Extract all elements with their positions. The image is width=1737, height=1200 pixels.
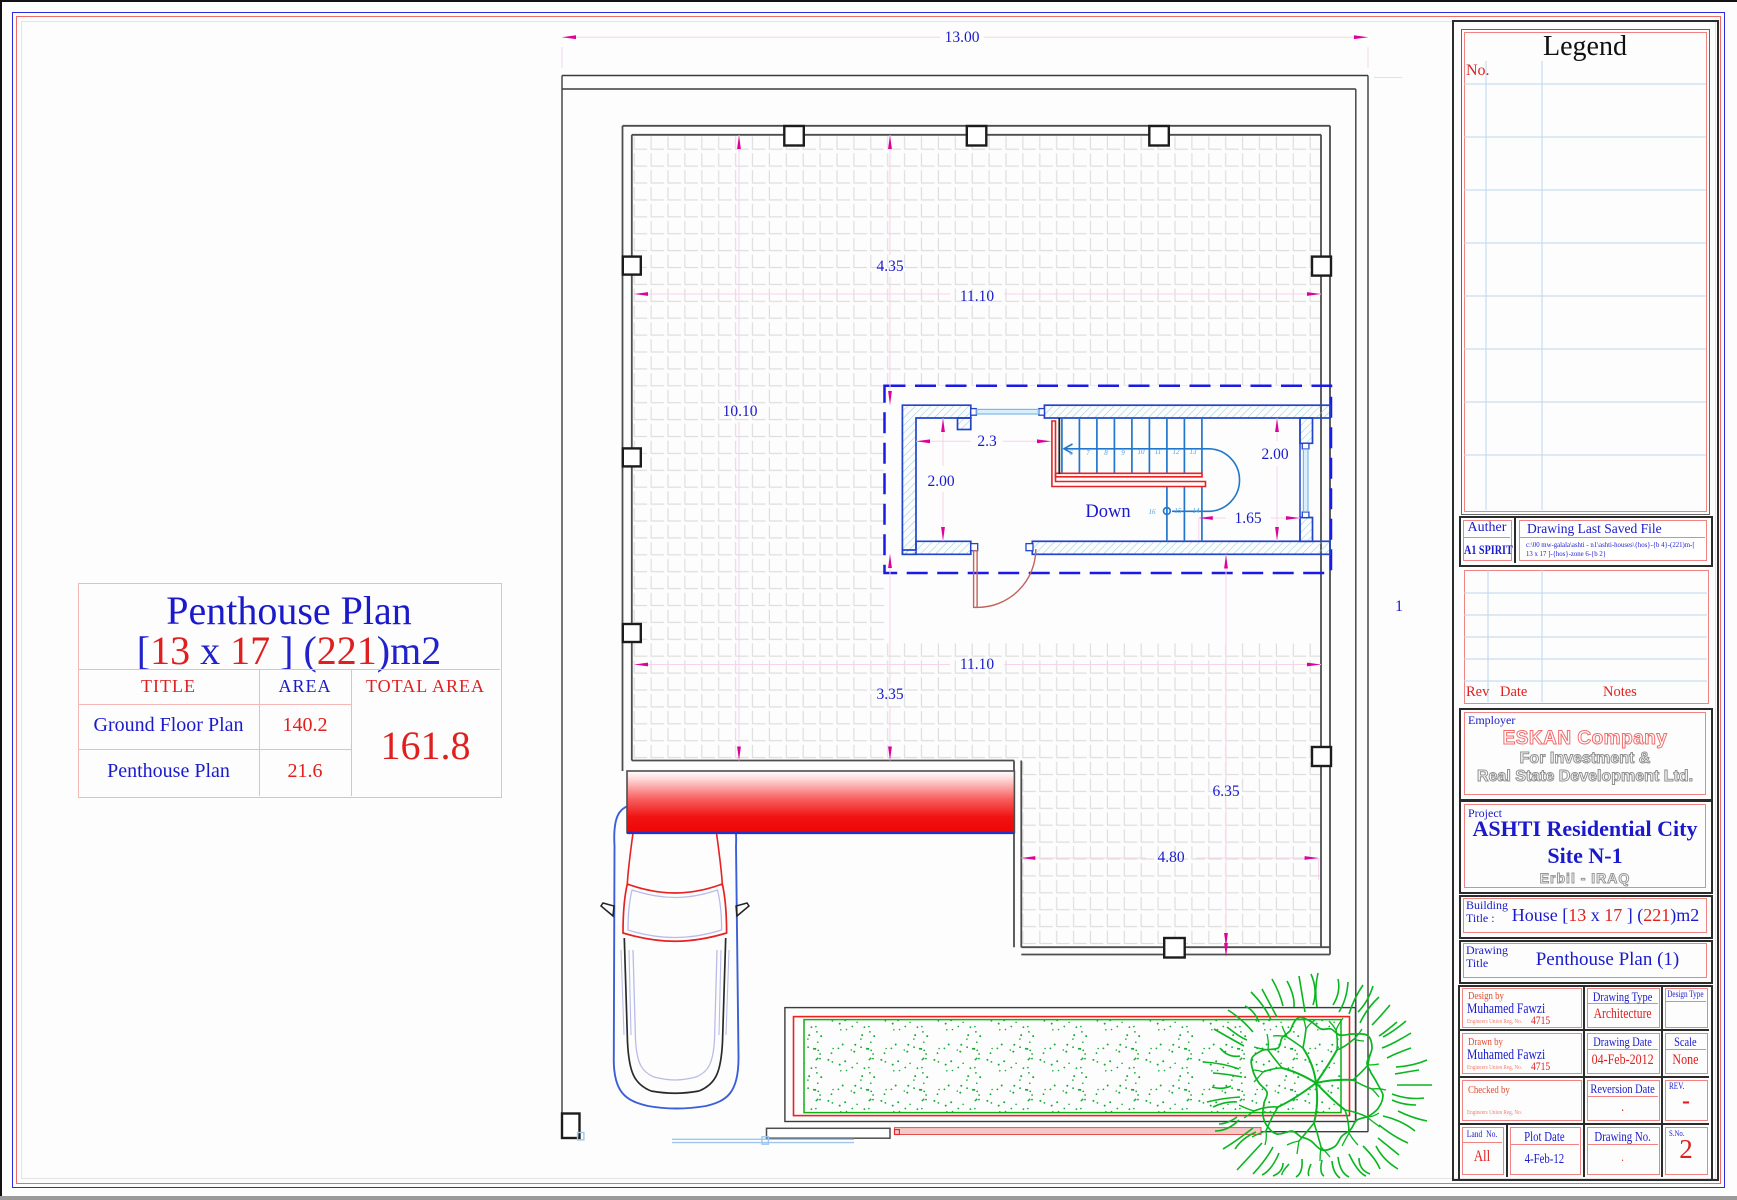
svg-text:4.80: 4.80 <box>1157 849 1184 866</box>
svg-text:8: 8 <box>1104 449 1108 457</box>
svg-text:2.00: 2.00 <box>927 473 954 490</box>
svg-text:2.00: 2.00 <box>1261 446 1288 463</box>
svg-text:11.10: 11.10 <box>960 656 995 673</box>
svg-text:13: 13 <box>1190 448 1198 456</box>
svg-text:3.35: 3.35 <box>876 686 903 703</box>
svg-text:1.65: 1.65 <box>1234 510 1261 527</box>
svg-text:11.10: 11.10 <box>960 288 995 305</box>
svg-text:4.35: 4.35 <box>876 258 903 275</box>
svg-text:13.00: 13.00 <box>945 29 980 46</box>
svg-text:11: 11 <box>1155 448 1161 456</box>
svg-text:12: 12 <box>1173 448 1181 456</box>
svg-text:Down: Down <box>1085 502 1130 522</box>
svg-text:15: 15 <box>1175 507 1183 515</box>
svg-text:16: 16 <box>1149 508 1157 516</box>
svg-text:14: 14 <box>1193 507 1201 515</box>
svg-text:6: 6 <box>1069 449 1073 457</box>
svg-text:6.35: 6.35 <box>1212 783 1239 800</box>
svg-text:10: 10 <box>1138 448 1146 456</box>
svg-text:9: 9 <box>1121 449 1125 457</box>
svg-text:2.3: 2.3 <box>977 433 997 450</box>
svg-text:1: 1 <box>1395 598 1403 615</box>
svg-text:7: 7 <box>1086 449 1090 457</box>
svg-text:10.10: 10.10 <box>723 403 758 420</box>
